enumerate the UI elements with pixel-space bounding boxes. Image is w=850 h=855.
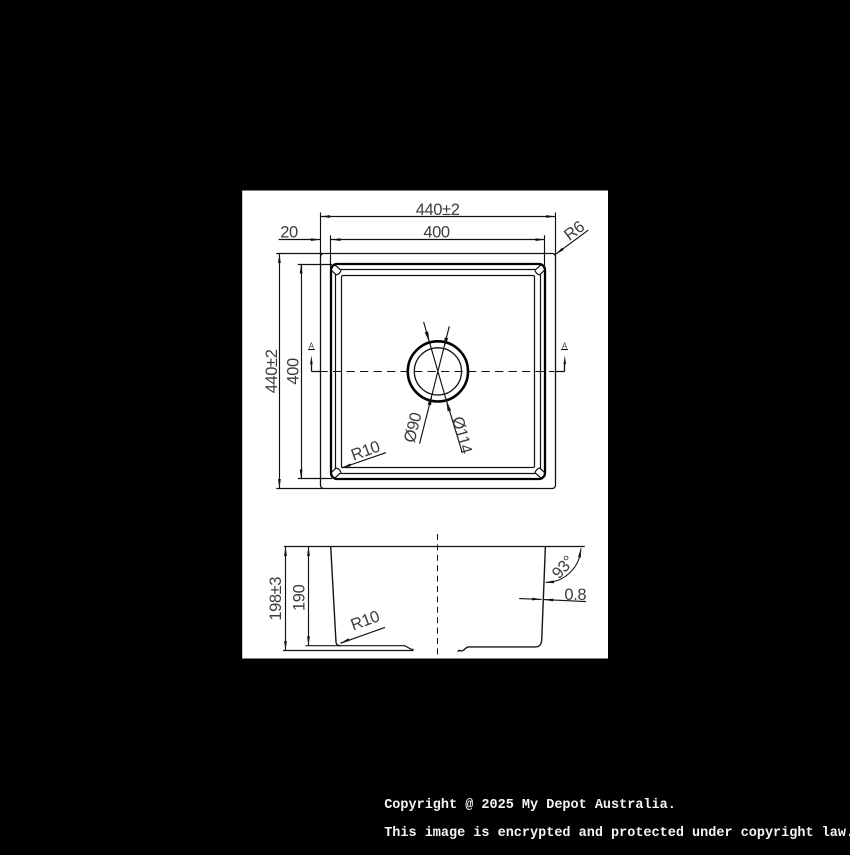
svg-text:400: 400 [284, 358, 302, 385]
svg-text:190: 190 [290, 584, 308, 611]
svg-text:400: 400 [423, 224, 450, 242]
svg-text:This image is encrypted and pr: This image is encrypted and protected un… [384, 826, 850, 841]
svg-text:Copyright @ 2025 My Depot Aust: Copyright @ 2025 My Depot Australia. [384, 798, 676, 813]
svg-text:198±3: 198±3 [267, 577, 285, 621]
svg-text:0.8: 0.8 [564, 586, 586, 604]
svg-text:20: 20 [280, 223, 298, 241]
svg-text:440±2: 440±2 [263, 349, 281, 393]
svg-text:440±2: 440±2 [416, 201, 460, 219]
